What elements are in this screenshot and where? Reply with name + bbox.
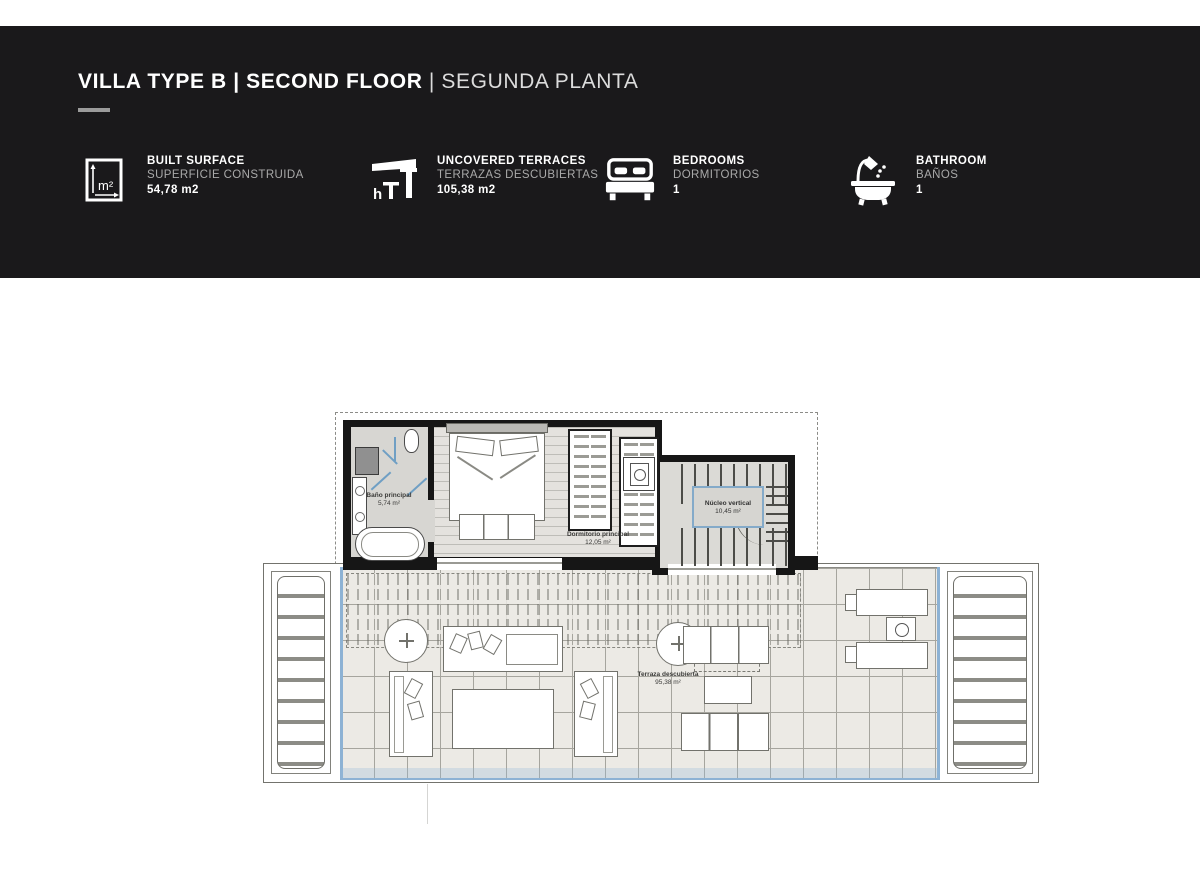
- louver-screen-right: [947, 571, 1033, 774]
- appliance: [623, 457, 655, 491]
- bedroom-label: Dormitorio principal 12,05 m²: [556, 531, 640, 547]
- wall-stub-right: [793, 556, 818, 570]
- door-opening-bathroom: [427, 500, 435, 542]
- table-cross: [678, 636, 680, 651]
- appliance-door: [630, 463, 649, 486]
- bathtub: [355, 527, 425, 561]
- room-area: 95,38 m²: [626, 679, 710, 687]
- bathtub-inner: [361, 532, 419, 557]
- cushion: [579, 701, 596, 721]
- cushion: [404, 678, 423, 699]
- bed: [449, 433, 545, 521]
- wardrobe: [568, 429, 612, 531]
- cushion: [449, 633, 468, 654]
- room-area: 5,74 m²: [356, 500, 422, 508]
- coffee-table: [704, 676, 752, 704]
- wardrobe-shelves: [574, 435, 589, 525]
- sliding-door-bedroom: [437, 558, 562, 570]
- sofa-seat: [506, 634, 558, 665]
- cushion: [407, 701, 424, 721]
- louver-screen-left: [271, 571, 331, 774]
- terrace-label: Terraza descubierta 95,38 m²: [626, 671, 710, 687]
- chaise-back: [394, 676, 404, 753]
- lounge-sofa-top: [443, 626, 563, 672]
- room-name: Baño principal: [356, 492, 422, 500]
- sink-bowl: [895, 623, 909, 637]
- blanket-fold: [500, 455, 536, 479]
- wardrobe-shelves: [591, 435, 606, 525]
- bench-sofa-top: [683, 626, 769, 664]
- cushion: [483, 634, 503, 655]
- pillow: [499, 436, 539, 457]
- shower-screen: [394, 437, 396, 461]
- appliance-drum: [634, 469, 646, 481]
- table-cross: [406, 633, 408, 648]
- outdoor-kitchen-counter: [856, 642, 928, 669]
- outdoor-kitchen-sink: [886, 617, 916, 641]
- stair-treads-right: [766, 486, 788, 544]
- bench-sofa-bottom: [681, 713, 769, 751]
- room-name: Núcleo vertical: [705, 500, 751, 507]
- shower: [355, 447, 379, 475]
- outdoor-kitchen-counter: [856, 589, 928, 616]
- louver-slats: [277, 576, 325, 769]
- glass-rail-left: [340, 567, 343, 780]
- blanket-fold: [457, 456, 493, 480]
- room-name: Terraza descubierta: [626, 671, 710, 679]
- chaise-back: [603, 676, 613, 753]
- pillow: [455, 436, 495, 457]
- room-name: Dormitorio principal: [556, 531, 640, 539]
- bed-foot-bench: [459, 514, 535, 540]
- kitchen-side-unit: [845, 594, 857, 611]
- cushion: [467, 631, 484, 651]
- dining-table: [452, 689, 554, 749]
- cushion: [580, 678, 599, 699]
- room-area: 12,05 m²: [556, 539, 640, 547]
- bathroom-label: Baño principal 5,74 m²: [356, 492, 422, 508]
- glass-rail-bottom: [341, 768, 939, 780]
- basin: [355, 512, 365, 522]
- reference-tick: [427, 784, 428, 824]
- floor-plan: Núcleo vertical 10,45 m² Baño principal …: [0, 0, 1200, 884]
- toilet: [404, 429, 419, 453]
- round-table: [384, 619, 428, 663]
- louver-slats: [953, 576, 1027, 769]
- kitchen-side-unit: [845, 646, 857, 663]
- bed-headboard: [446, 423, 548, 433]
- glass-rail-right: [937, 567, 940, 780]
- chaise-left: [389, 671, 433, 757]
- stairwell-label-box: Núcleo vertical 10,45 m²: [692, 486, 764, 528]
- chaise-right: [574, 671, 618, 757]
- room-area: 10,45 m²: [715, 508, 741, 515]
